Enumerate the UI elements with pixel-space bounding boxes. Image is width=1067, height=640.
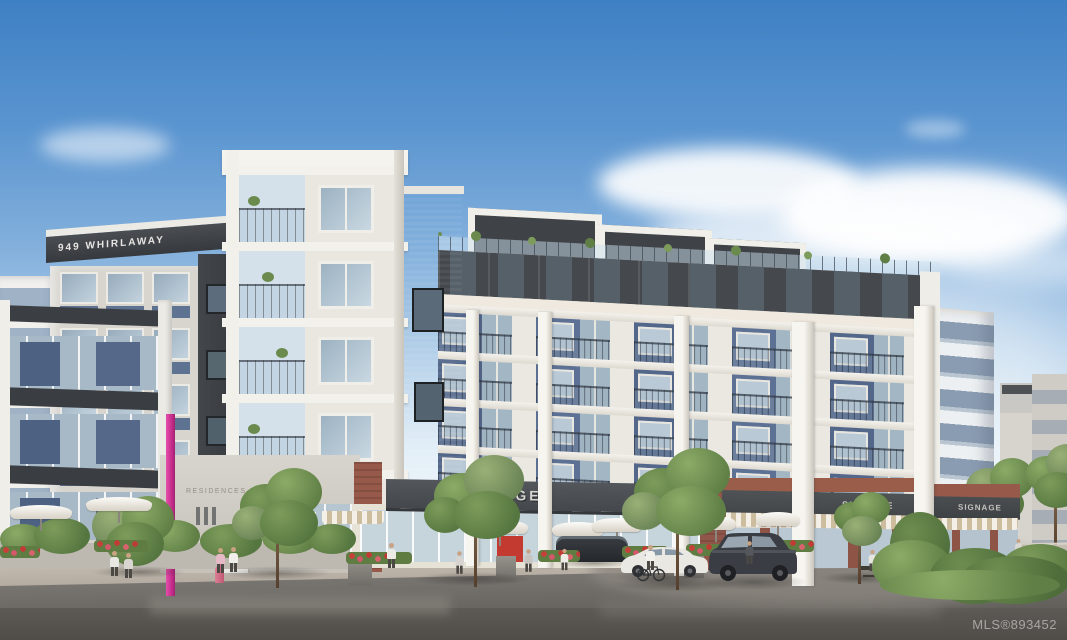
tower-b-top-slab — [222, 150, 408, 166]
fascia-band — [0, 305, 172, 327]
mullion — [345, 413, 347, 461]
balcony-slab — [222, 242, 408, 251]
glass-railing — [239, 360, 305, 394]
facade-panel — [96, 342, 140, 386]
balcony-plant — [248, 196, 260, 206]
facade-wall — [708, 373, 732, 413]
flower-bed — [94, 540, 148, 552]
colonnade-column-2 — [538, 312, 552, 568]
facade-wall — [512, 363, 536, 403]
pedestrian — [216, 548, 225, 573]
glass-railing — [239, 208, 305, 242]
mullion — [345, 185, 347, 233]
balcony-slab — [222, 318, 408, 327]
cafe-patron — [561, 549, 569, 570]
fascia-band — [0, 465, 172, 489]
mls-watermark: MLS®893452 — [972, 617, 1057, 632]
flower-bed — [0, 546, 40, 558]
balcony-plant — [276, 348, 288, 358]
facade-wall — [512, 410, 536, 450]
spine-cap — [396, 186, 464, 194]
architectural-rendering: 949 WHIRLAWAY — [0, 0, 1067, 640]
wall-slats — [196, 507, 218, 525]
window — [414, 382, 444, 422]
cloud-icon — [40, 128, 170, 162]
cloud-icon — [905, 120, 965, 138]
street-tree — [424, 455, 524, 587]
umbrella — [10, 505, 72, 531]
balcony-slab — [222, 166, 408, 175]
balcony-slab — [222, 394, 408, 403]
distant-sign-band — [1002, 385, 1032, 394]
shadow — [92, 566, 187, 578]
fascia-band — [0, 387, 172, 411]
umbrella — [86, 497, 152, 523]
cafe-patron — [524, 549, 532, 572]
foreground-planting — [860, 495, 1067, 610]
pedestrian — [124, 553, 133, 578]
building-address-sign: 949 WHIRLAWAY — [58, 235, 165, 254]
awning-left — [322, 511, 384, 524]
facade-panel — [20, 342, 60, 386]
flower-bed — [538, 550, 580, 562]
facade-panel — [20, 420, 60, 464]
facade-panel — [96, 420, 140, 464]
mullion — [345, 261, 347, 309]
facade-wall — [512, 316, 536, 356]
pedestrian — [387, 543, 396, 568]
window — [412, 288, 444, 332]
glass-railing — [239, 284, 305, 318]
pedestrian — [110, 551, 119, 576]
pavement-patch — [150, 596, 450, 614]
facade-wall — [610, 321, 634, 361]
balcony-plant — [248, 424, 260, 434]
mullion — [345, 337, 347, 385]
facade-wall — [610, 368, 634, 408]
facade-wall — [708, 326, 732, 366]
street-tree — [232, 468, 322, 588]
flower-bed — [346, 552, 412, 564]
pedestrian — [745, 541, 753, 564]
street-tree — [622, 448, 732, 590]
balcony-plant — [262, 272, 274, 282]
